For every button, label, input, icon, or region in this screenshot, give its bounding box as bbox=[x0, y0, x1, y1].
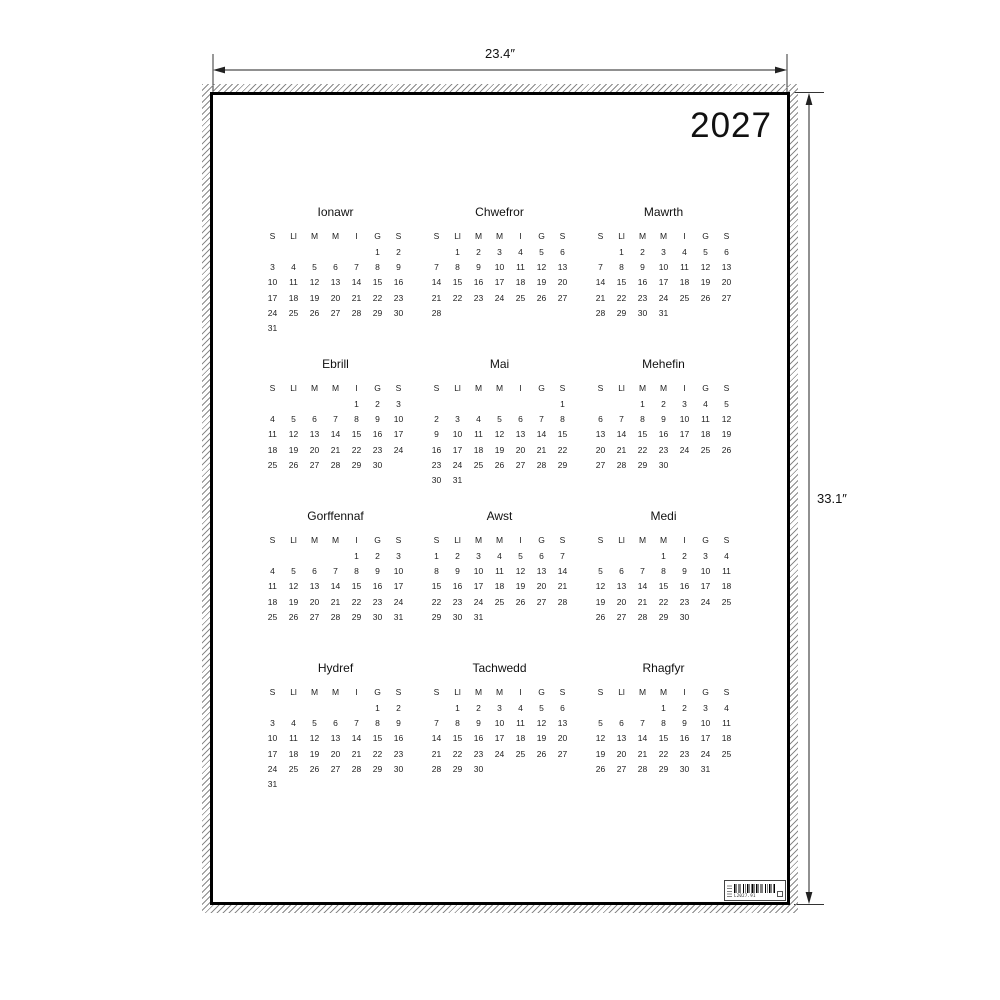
month-block: Ionawr SLlMMIGS 123456789101112131415161… bbox=[262, 205, 409, 336]
day-cell: 30 bbox=[388, 305, 409, 320]
month-title: Gorffennaf bbox=[262, 509, 409, 523]
day-cell: 22 bbox=[426, 594, 447, 609]
week-row: 21222324252627 bbox=[590, 290, 737, 305]
day-cell: 23 bbox=[468, 290, 489, 305]
week-row: 567891011 bbox=[590, 564, 737, 579]
day-cell: 1 bbox=[346, 548, 367, 563]
day-cell: 17 bbox=[695, 731, 716, 746]
day-cell: 12 bbox=[283, 579, 304, 594]
week-row: 13141516171819 bbox=[590, 427, 737, 442]
day-cell: 24 bbox=[447, 457, 468, 472]
day-header-cell: I bbox=[510, 685, 531, 700]
day-header-row: SLlMMIGS bbox=[590, 229, 737, 244]
empty-day-cell bbox=[367, 777, 388, 792]
week-row: 1234567 bbox=[426, 548, 573, 563]
month-table: SLlMMIGS 1234567891011121314151617181920… bbox=[262, 381, 409, 488]
day-cell: 1 bbox=[632, 396, 653, 411]
day-cell: 29 bbox=[447, 761, 468, 776]
day-cell: 8 bbox=[653, 716, 674, 731]
day-header-cell: S bbox=[388, 229, 409, 244]
day-cell: 21 bbox=[426, 290, 447, 305]
day-cell: 1 bbox=[653, 548, 674, 563]
week-row bbox=[590, 777, 737, 792]
day-header-cell: M bbox=[632, 381, 653, 396]
day-cell: 4 bbox=[510, 700, 531, 715]
empty-day-cell bbox=[552, 305, 573, 320]
day-cell: 22 bbox=[653, 594, 674, 609]
empty-day-cell bbox=[468, 321, 489, 336]
day-cell: 24 bbox=[489, 746, 510, 761]
day-cell: 21 bbox=[346, 746, 367, 761]
day-cell: 26 bbox=[531, 746, 552, 761]
day-cell: 4 bbox=[716, 548, 737, 563]
day-cell: 6 bbox=[716, 244, 737, 259]
day-cell: 28 bbox=[531, 457, 552, 472]
day-cell: 25 bbox=[716, 594, 737, 609]
day-header-cell: G bbox=[531, 381, 552, 396]
day-header-row: SLlMMIGS bbox=[590, 533, 737, 548]
empty-day-cell bbox=[674, 305, 695, 320]
day-header-cell: Ll bbox=[447, 381, 468, 396]
week-row: 1234 bbox=[590, 548, 737, 563]
week-row: 1 bbox=[426, 396, 573, 411]
empty-day-cell bbox=[262, 244, 283, 259]
day-header-cell: Ll bbox=[611, 533, 632, 548]
empty-day-cell bbox=[262, 396, 283, 411]
day-cell: 16 bbox=[632, 275, 653, 290]
day-cell: 10 bbox=[653, 260, 674, 275]
day-cell: 1 bbox=[346, 396, 367, 411]
day-cell: 22 bbox=[552, 442, 573, 457]
day-cell: 19 bbox=[510, 579, 531, 594]
empty-day-cell bbox=[489, 609, 510, 624]
month-block: Chwefror SLlMMIGS 1234567891011121314151… bbox=[426, 205, 573, 336]
day-cell: 7 bbox=[590, 260, 611, 275]
month-title: Mawrth bbox=[590, 205, 737, 219]
day-cell: 25 bbox=[262, 609, 283, 624]
day-cell: 19 bbox=[489, 442, 510, 457]
week-row: 45678910 bbox=[262, 564, 409, 579]
day-cell: 28 bbox=[346, 761, 367, 776]
day-cell: 9 bbox=[674, 564, 695, 579]
day-header-cell: Ll bbox=[611, 381, 632, 396]
week-row: 12131415161718 bbox=[590, 731, 737, 746]
empty-day-cell bbox=[367, 625, 388, 640]
day-cell: 5 bbox=[716, 396, 737, 411]
month-title: Mai bbox=[426, 357, 573, 371]
day-cell: 14 bbox=[632, 579, 653, 594]
day-cell: 22 bbox=[346, 594, 367, 609]
day-header-cell: S bbox=[552, 685, 573, 700]
day-cell: 15 bbox=[367, 731, 388, 746]
day-cell: 18 bbox=[468, 442, 489, 457]
day-cell: 18 bbox=[674, 275, 695, 290]
day-cell: 18 bbox=[716, 579, 737, 594]
week-row bbox=[262, 625, 409, 640]
week-row: 28 bbox=[426, 305, 573, 320]
week-row: 12 bbox=[262, 244, 409, 259]
day-cell: 12 bbox=[304, 731, 325, 746]
empty-day-cell bbox=[716, 321, 737, 336]
day-cell: 20 bbox=[590, 442, 611, 457]
day-header-cell: Ll bbox=[283, 533, 304, 548]
day-header-cell: S bbox=[590, 533, 611, 548]
day-cell: 27 bbox=[552, 290, 573, 305]
day-cell: 29 bbox=[367, 305, 388, 320]
day-header-cell: M bbox=[489, 229, 510, 244]
day-cell: 25 bbox=[468, 457, 489, 472]
week-row: 123456 bbox=[590, 244, 737, 259]
week-row: 15161718192021 bbox=[426, 579, 573, 594]
day-cell: 25 bbox=[674, 290, 695, 305]
day-header-row: SLlMMIGS bbox=[590, 381, 737, 396]
empty-day-cell bbox=[346, 777, 367, 792]
day-cell: 5 bbox=[510, 548, 531, 563]
day-cell: 8 bbox=[632, 412, 653, 427]
day-cell: 11 bbox=[283, 275, 304, 290]
week-row: 24252627282930 bbox=[262, 761, 409, 776]
day-cell: 11 bbox=[674, 260, 695, 275]
day-cell: 13 bbox=[325, 275, 346, 290]
day-header-cell: I bbox=[510, 533, 531, 548]
day-cell: 14 bbox=[325, 579, 346, 594]
week-row: 24252627282930 bbox=[262, 305, 409, 320]
empty-day-cell bbox=[590, 777, 611, 792]
day-cell: 10 bbox=[695, 716, 716, 731]
day-cell: 19 bbox=[590, 746, 611, 761]
day-cell: 11 bbox=[716, 716, 737, 731]
day-cell: 14 bbox=[346, 275, 367, 290]
day-cell: 13 bbox=[510, 427, 531, 442]
empty-day-cell bbox=[590, 321, 611, 336]
empty-day-cell bbox=[468, 305, 489, 320]
empty-day-cell bbox=[632, 473, 653, 488]
day-cell: 13 bbox=[716, 260, 737, 275]
day-cell: 2 bbox=[388, 244, 409, 259]
week-row: 17181920212223 bbox=[262, 290, 409, 305]
week-row: 12 bbox=[262, 700, 409, 715]
empty-day-cell bbox=[325, 625, 346, 640]
day-cell: 25 bbox=[262, 457, 283, 472]
day-cell: 15 bbox=[346, 579, 367, 594]
day-cell: 27 bbox=[611, 609, 632, 624]
day-cell: 6 bbox=[552, 244, 573, 259]
day-header-cell: S bbox=[426, 229, 447, 244]
day-cell: 28 bbox=[426, 305, 447, 320]
day-header-cell: G bbox=[695, 381, 716, 396]
day-cell: 15 bbox=[552, 427, 573, 442]
week-row: 45678910 bbox=[262, 412, 409, 427]
day-cell: 24 bbox=[653, 290, 674, 305]
day-cell: 16 bbox=[388, 731, 409, 746]
empty-day-cell bbox=[325, 473, 346, 488]
empty-day-cell bbox=[388, 457, 409, 472]
month-block: Mehefin SLlMMIGS 12345678910111213141516… bbox=[590, 357, 737, 488]
empty-day-cell bbox=[716, 305, 737, 320]
day-header-cell: S bbox=[716, 381, 737, 396]
day-cell: 6 bbox=[611, 564, 632, 579]
day-cell: 19 bbox=[304, 290, 325, 305]
day-cell: 23 bbox=[388, 746, 409, 761]
day-cell: 30 bbox=[426, 473, 447, 488]
day-header-cell: S bbox=[388, 381, 409, 396]
day-cell: 11 bbox=[283, 731, 304, 746]
day-header-cell: M bbox=[468, 533, 489, 548]
barcode-label: L2027.91 bbox=[724, 880, 786, 901]
day-cell: 21 bbox=[346, 290, 367, 305]
day-cell: 26 bbox=[283, 609, 304, 624]
day-cell: 12 bbox=[489, 427, 510, 442]
day-cell: 7 bbox=[632, 716, 653, 731]
day-header-cell: S bbox=[262, 229, 283, 244]
day-cell: 22 bbox=[653, 746, 674, 761]
day-header-cell: M bbox=[653, 381, 674, 396]
week-row bbox=[590, 473, 737, 488]
empty-day-cell bbox=[304, 244, 325, 259]
year-heading: 2027 bbox=[690, 108, 772, 144]
day-cell: 21 bbox=[632, 594, 653, 609]
week-row: 78910111213 bbox=[590, 260, 737, 275]
day-cell: 3 bbox=[674, 396, 695, 411]
week-row: 10111213141516 bbox=[262, 275, 409, 290]
empty-day-cell bbox=[552, 609, 573, 624]
day-cell: 25 bbox=[283, 761, 304, 776]
empty-day-cell bbox=[552, 777, 573, 792]
day-cell: 29 bbox=[367, 761, 388, 776]
empty-day-cell bbox=[695, 305, 716, 320]
width-dimension-label: 23.4″ bbox=[460, 46, 540, 61]
day-cell: 14 bbox=[590, 275, 611, 290]
empty-day-cell bbox=[426, 321, 447, 336]
day-cell: 1 bbox=[447, 700, 468, 715]
month-block: Hydref SLlMMIGS 123456789101112131415161… bbox=[262, 661, 409, 792]
day-cell: 18 bbox=[695, 427, 716, 442]
day-cell: 1 bbox=[367, 700, 388, 715]
day-cell: 21 bbox=[590, 290, 611, 305]
week-row: 17181920212223 bbox=[262, 746, 409, 761]
empty-day-cell bbox=[283, 244, 304, 259]
day-header-cell: M bbox=[653, 685, 674, 700]
day-cell: 26 bbox=[283, 457, 304, 472]
day-header-row: SLlMMIGS bbox=[262, 229, 409, 244]
day-cell: 11 bbox=[510, 716, 531, 731]
day-cell: 1 bbox=[426, 548, 447, 563]
month-block: Tachwedd SLlMMIGS 1234567891011121314151… bbox=[426, 661, 573, 792]
empty-day-cell bbox=[510, 761, 531, 776]
barcode-vertical-text bbox=[727, 884, 732, 897]
day-cell: 7 bbox=[552, 548, 573, 563]
day-cell: 17 bbox=[489, 731, 510, 746]
month-table: SLlMMIGS 1234567891011121314151617181920… bbox=[590, 685, 737, 792]
day-cell: 2 bbox=[632, 244, 653, 259]
day-cell: 7 bbox=[611, 412, 632, 427]
day-cell: 7 bbox=[426, 716, 447, 731]
week-row: 1234 bbox=[590, 700, 737, 715]
day-cell: 11 bbox=[489, 564, 510, 579]
empty-day-cell bbox=[489, 473, 510, 488]
day-cell: 7 bbox=[325, 412, 346, 427]
day-cell: 1 bbox=[447, 244, 468, 259]
empty-day-cell bbox=[695, 457, 716, 472]
empty-day-cell bbox=[590, 625, 611, 640]
week-row: 3456789 bbox=[262, 260, 409, 275]
day-header-cell: M bbox=[325, 381, 346, 396]
day-cell: 21 bbox=[325, 594, 346, 609]
week-row: 3031 bbox=[426, 473, 573, 488]
day-header-cell: S bbox=[552, 229, 573, 244]
day-cell: 6 bbox=[304, 412, 325, 427]
day-cell: 3 bbox=[388, 548, 409, 563]
day-cell: 22 bbox=[447, 290, 468, 305]
empty-day-cell bbox=[447, 625, 468, 640]
day-cell: 26 bbox=[304, 305, 325, 320]
day-cell: 25 bbox=[510, 290, 531, 305]
day-cell: 2 bbox=[468, 700, 489, 715]
day-cell: 23 bbox=[674, 594, 695, 609]
day-header-cell: I bbox=[510, 381, 531, 396]
day-header-cell: M bbox=[325, 229, 346, 244]
empty-day-cell bbox=[468, 777, 489, 792]
day-cell: 7 bbox=[632, 564, 653, 579]
day-cell: 30 bbox=[674, 761, 695, 776]
day-header-cell: S bbox=[716, 533, 737, 548]
week-row: 27282930 bbox=[590, 457, 737, 472]
empty-day-cell bbox=[510, 625, 531, 640]
day-cell: 24 bbox=[695, 746, 716, 761]
empty-day-cell bbox=[283, 396, 304, 411]
day-cell: 22 bbox=[346, 442, 367, 457]
day-header-cell: I bbox=[346, 381, 367, 396]
week-row: 123 bbox=[262, 548, 409, 563]
empty-day-cell bbox=[695, 321, 716, 336]
day-cell: 20 bbox=[611, 746, 632, 761]
day-header-cell: S bbox=[590, 381, 611, 396]
day-cell: 7 bbox=[531, 412, 552, 427]
empty-day-cell bbox=[489, 777, 510, 792]
day-cell: 23 bbox=[447, 594, 468, 609]
day-cell: 13 bbox=[611, 731, 632, 746]
day-cell: 2 bbox=[426, 412, 447, 427]
day-cell: 4 bbox=[716, 700, 737, 715]
day-cell: 25 bbox=[283, 305, 304, 320]
week-row: 14151617181920 bbox=[426, 275, 573, 290]
week-row: 282930 bbox=[426, 761, 573, 776]
day-header-cell: S bbox=[426, 685, 447, 700]
empty-day-cell bbox=[590, 244, 611, 259]
day-cell: 10 bbox=[468, 564, 489, 579]
month-title: Rhagfyr bbox=[590, 661, 737, 675]
day-cell: 7 bbox=[426, 260, 447, 275]
day-cell: 31 bbox=[468, 609, 489, 624]
empty-day-cell bbox=[674, 777, 695, 792]
day-cell: 27 bbox=[304, 457, 325, 472]
barcode-code: L2027.91 bbox=[734, 893, 775, 898]
day-cell: 9 bbox=[388, 260, 409, 275]
empty-day-cell bbox=[590, 473, 611, 488]
week-row: 11121314151617 bbox=[262, 427, 409, 442]
day-cell: 3 bbox=[695, 700, 716, 715]
day-cell: 17 bbox=[695, 579, 716, 594]
day-cell: 22 bbox=[367, 746, 388, 761]
month-block: Mawrth SLlMMIGS 123456789101112131415161… bbox=[590, 205, 737, 336]
day-cell: 18 bbox=[262, 594, 283, 609]
empty-day-cell bbox=[716, 761, 737, 776]
empty-day-cell bbox=[283, 473, 304, 488]
empty-day-cell bbox=[674, 473, 695, 488]
empty-day-cell bbox=[531, 777, 552, 792]
day-cell: 28 bbox=[426, 761, 447, 776]
day-cell: 1 bbox=[653, 700, 674, 715]
empty-day-cell bbox=[611, 321, 632, 336]
day-cell: 30 bbox=[367, 457, 388, 472]
day-cell: 5 bbox=[590, 564, 611, 579]
day-header-cell: I bbox=[510, 229, 531, 244]
day-cell: 16 bbox=[653, 427, 674, 442]
empty-day-cell bbox=[716, 473, 737, 488]
day-cell: 8 bbox=[653, 564, 674, 579]
day-cell: 17 bbox=[468, 579, 489, 594]
day-header-cell: Ll bbox=[447, 229, 468, 244]
day-header-cell: G bbox=[367, 533, 388, 548]
empty-day-cell bbox=[489, 761, 510, 776]
day-header-cell: S bbox=[388, 685, 409, 700]
day-cell: 5 bbox=[304, 716, 325, 731]
month-title: Mehefin bbox=[590, 357, 737, 371]
empty-day-cell bbox=[426, 625, 447, 640]
empty-day-cell bbox=[695, 625, 716, 640]
day-cell: 27 bbox=[590, 457, 611, 472]
empty-day-cell bbox=[531, 321, 552, 336]
day-cell: 6 bbox=[325, 716, 346, 731]
day-cell: 28 bbox=[611, 457, 632, 472]
day-cell: 30 bbox=[653, 457, 674, 472]
empty-day-cell bbox=[552, 625, 573, 640]
month-title: Tachwedd bbox=[426, 661, 573, 675]
day-cell: 19 bbox=[531, 275, 552, 290]
day-cell: 7 bbox=[325, 564, 346, 579]
day-header-cell: S bbox=[426, 533, 447, 548]
day-cell: 18 bbox=[283, 290, 304, 305]
empty-day-cell bbox=[611, 625, 632, 640]
week-row bbox=[262, 473, 409, 488]
page: 23.4″ 33.1″ 2027 Ionawr SLlMMIGS 1234567… bbox=[0, 0, 1000, 1000]
day-header-cell: Ll bbox=[447, 685, 468, 700]
day-cell: 18 bbox=[283, 746, 304, 761]
day-cell: 10 bbox=[674, 412, 695, 427]
week-row bbox=[590, 321, 737, 336]
month-title: Hydref bbox=[262, 661, 409, 675]
day-cell: 2 bbox=[653, 396, 674, 411]
day-cell: 20 bbox=[552, 275, 573, 290]
day-header-cell: Ll bbox=[447, 533, 468, 548]
empty-day-cell bbox=[632, 321, 653, 336]
day-cell: 24 bbox=[262, 761, 283, 776]
day-cell: 6 bbox=[510, 412, 531, 427]
month-table: SLlMMIGS 1234567891011121314151617181920… bbox=[590, 533, 737, 640]
day-cell: 11 bbox=[262, 579, 283, 594]
day-cell: 10 bbox=[388, 412, 409, 427]
month-table: SLlMMIGS 1234567891011121314151617181920… bbox=[426, 381, 573, 488]
empty-day-cell bbox=[653, 321, 674, 336]
day-header-cell: S bbox=[716, 229, 737, 244]
day-cell: 22 bbox=[367, 290, 388, 305]
day-cell: 28 bbox=[632, 609, 653, 624]
day-cell: 7 bbox=[346, 716, 367, 731]
day-cell: 30 bbox=[388, 761, 409, 776]
empty-day-cell bbox=[510, 321, 531, 336]
empty-day-cell bbox=[716, 609, 737, 624]
week-row: 18192021222324 bbox=[262, 594, 409, 609]
